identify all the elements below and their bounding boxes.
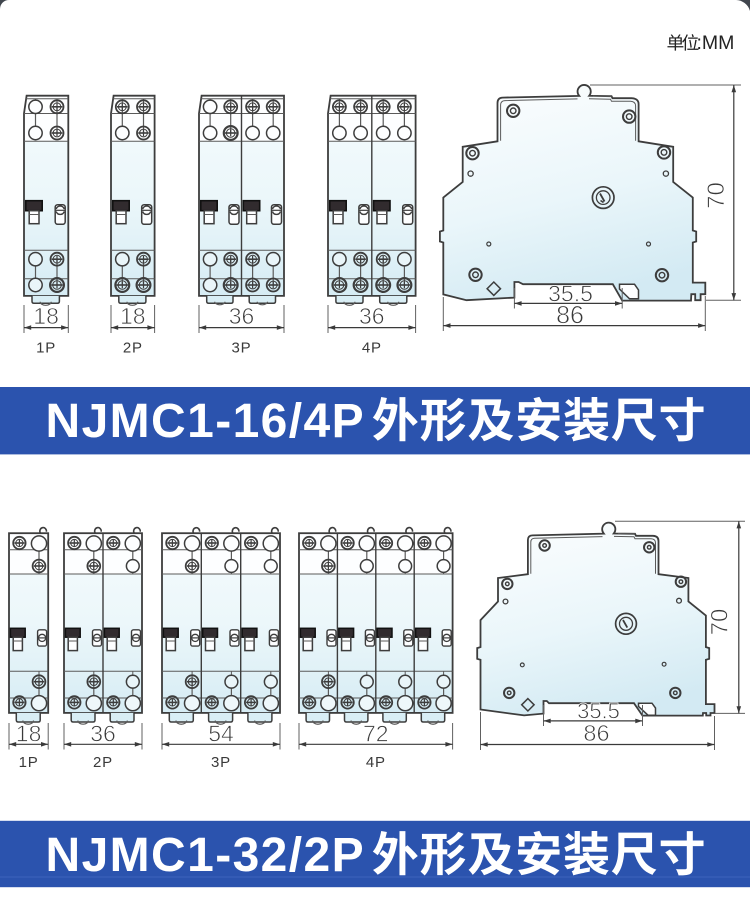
svg-text:70: 70 xyxy=(707,609,734,636)
svg-text:54: 54 xyxy=(208,720,234,746)
svg-text:72: 72 xyxy=(363,720,389,746)
svg-text:36: 36 xyxy=(229,303,255,329)
svg-text:36: 36 xyxy=(359,303,385,329)
svg-text:3P: 3P xyxy=(211,754,231,771)
svg-text:1P: 1P xyxy=(19,754,39,771)
svg-text:86: 86 xyxy=(556,301,584,329)
svg-text:NJMC1-32/2P: NJMC1-32/2P xyxy=(46,829,366,882)
svg-text:4P: 4P xyxy=(362,340,382,357)
svg-text:18: 18 xyxy=(120,303,146,329)
svg-text:36: 36 xyxy=(90,720,116,746)
svg-text:4P: 4P xyxy=(366,754,386,771)
svg-text:18: 18 xyxy=(33,303,59,329)
svg-text:86: 86 xyxy=(583,720,609,746)
svg-text:2P: 2P xyxy=(93,754,113,771)
svg-text:NJMC1-16/4P: NJMC1-16/4P xyxy=(46,395,366,448)
svg-text:70: 70 xyxy=(703,182,730,209)
svg-text:1P: 1P xyxy=(36,340,56,357)
svg-text:3P: 3P xyxy=(232,340,252,357)
svg-text:2P: 2P xyxy=(123,340,143,357)
svg-text:18: 18 xyxy=(16,720,42,746)
svg-text::MM: :MM xyxy=(697,32,735,54)
